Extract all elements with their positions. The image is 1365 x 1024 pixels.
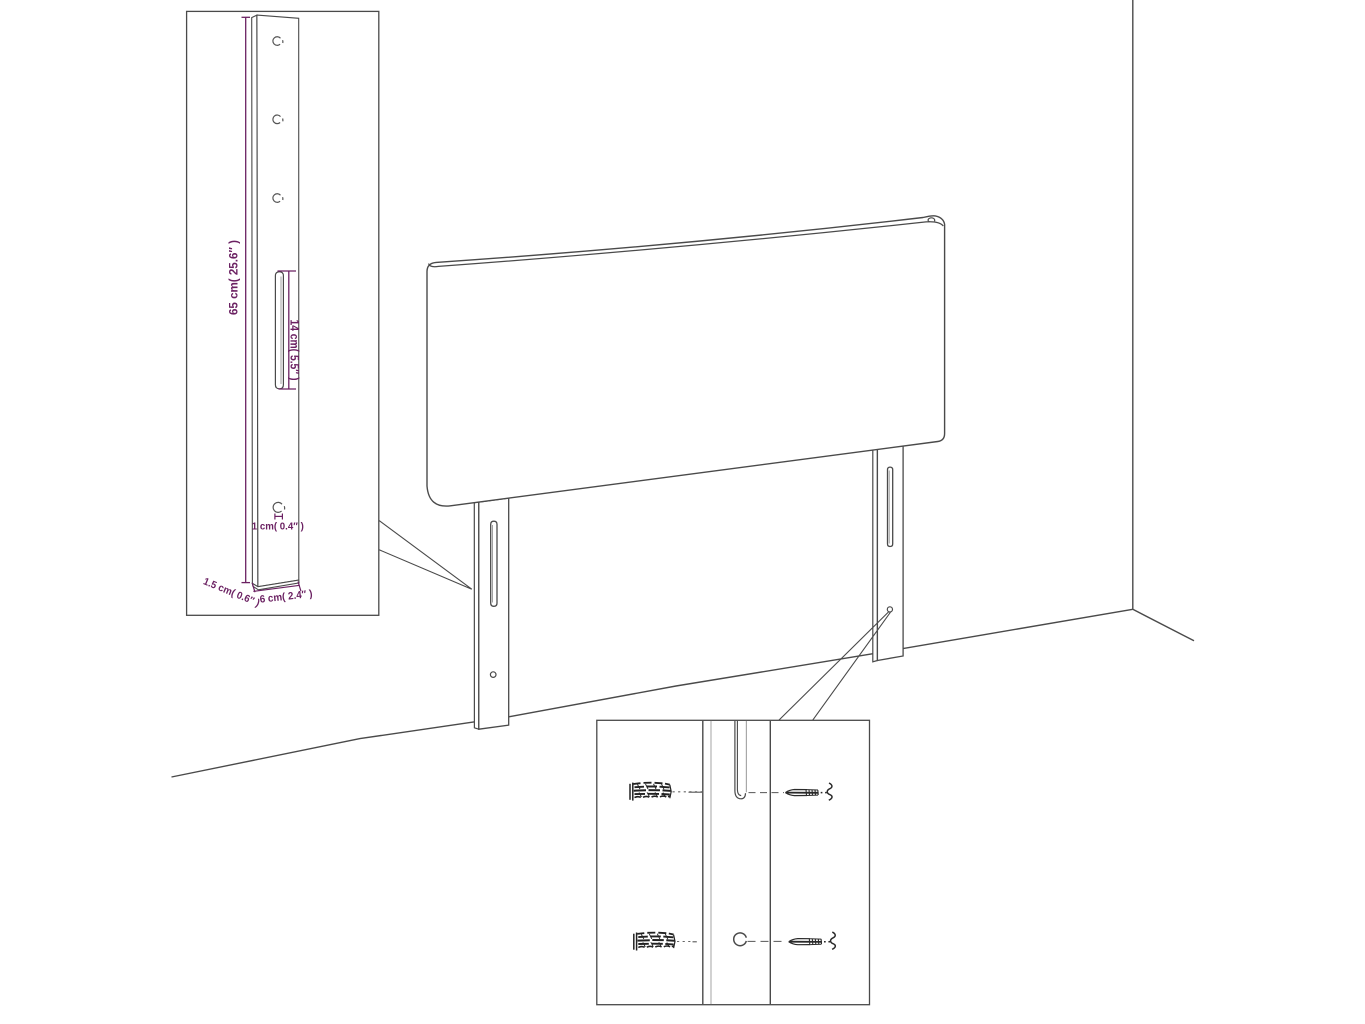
svg-text:14 cm( 5.5″ ): 14 cm( 5.5″ ) — [288, 320, 300, 381]
svg-text:1 cm( 0.4″ ): 1 cm( 0.4″ ) — [252, 521, 304, 533]
svg-text:65 cm( 25.6″ ): 65 cm( 25.6″ ) — [226, 240, 240, 315]
